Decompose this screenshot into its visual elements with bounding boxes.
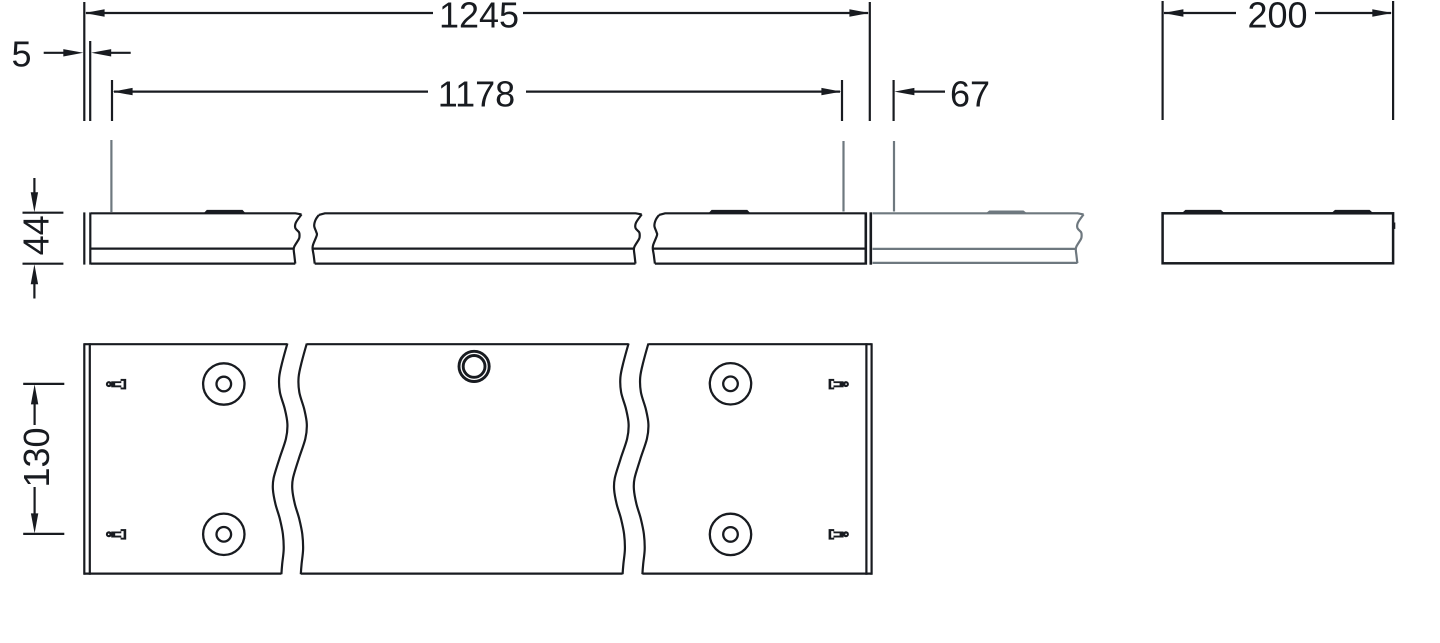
svg-text:5: 5 (11, 34, 31, 75)
svg-text:130: 130 (16, 427, 57, 487)
svg-text:44: 44 (16, 215, 57, 255)
svg-text:1245: 1245 (439, 0, 519, 35)
svg-text:67: 67 (950, 74, 990, 115)
svg-text:1178: 1178 (438, 74, 515, 115)
svg-text:200: 200 (1247, 0, 1307, 35)
